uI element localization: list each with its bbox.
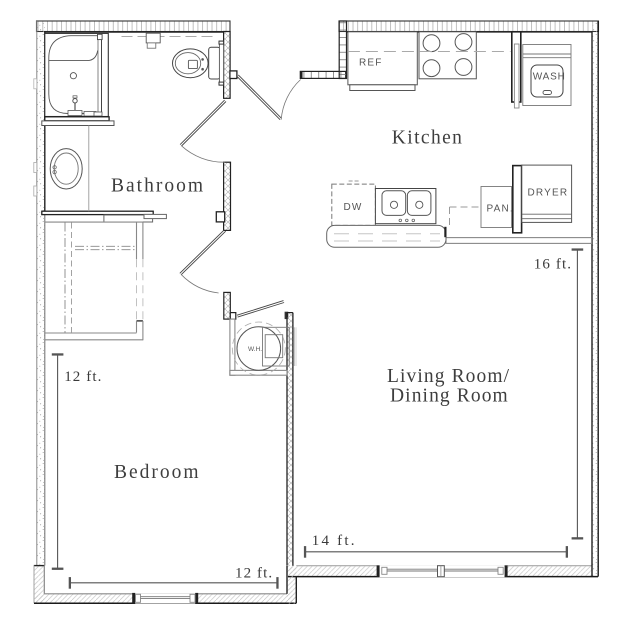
svg-text:12 ft.: 12 ft.: [235, 566, 273, 582]
svg-text:WASH: WASH: [533, 72, 566, 83]
svg-text:REF: REF: [359, 58, 383, 69]
svg-text:Bathroom: Bathroom: [111, 175, 205, 196]
svg-text:PAN.: PAN.: [487, 204, 514, 215]
svg-text:Bedroom: Bedroom: [114, 462, 201, 483]
svg-text:Living Room/: Living Room/: [387, 366, 510, 387]
svg-text:Dining Room: Dining Room: [390, 385, 509, 406]
svg-text:W.H.: W.H.: [248, 346, 262, 353]
svg-text:Kitchen: Kitchen: [392, 128, 464, 149]
svg-text:14 ft.: 14 ft.: [312, 533, 357, 549]
svg-text:DRYER: DRYER: [528, 188, 569, 199]
svg-text:16 ft.: 16 ft.: [534, 256, 572, 272]
svg-text:12 ft.: 12 ft.: [64, 369, 102, 385]
svg-text:DW: DW: [344, 202, 363, 213]
